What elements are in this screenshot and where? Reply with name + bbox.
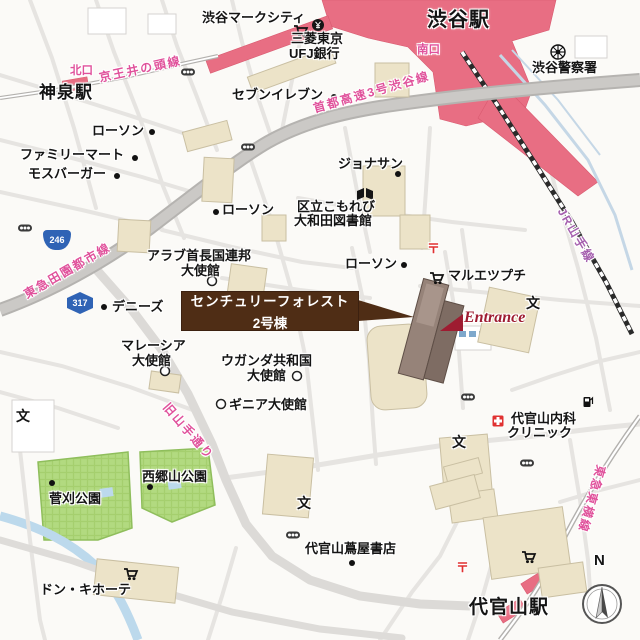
school-mark: 文 — [297, 496, 311, 510]
poi-dot — [213, 209, 219, 215]
label-north-exit: 北口 — [70, 66, 93, 78]
label-shinsen-station: 神泉駅 — [39, 84, 93, 101]
label-maruetsu-petit: マルエツプチ — [448, 269, 526, 282]
compass-rose — [583, 585, 621, 623]
label-lawson-2: ローソン — [222, 203, 274, 216]
school-mark: 文 — [526, 296, 540, 310]
traffic-light-icon — [18, 225, 32, 232]
label-lawson-3: ローソン — [345, 257, 397, 270]
label-uae-embassy-line2: 大使館 — [181, 264, 220, 277]
label-uganda-embassy-line1: ウガンダ共和国 — [221, 354, 312, 367]
label-seven-eleven: セブンイレブン — [232, 88, 323, 101]
label-dennys: デニーズ — [112, 300, 163, 313]
label-shibuya-station: 渋谷駅 — [427, 10, 490, 30]
bank-icon — [312, 19, 324, 31]
label-library-line2: 大和田図書館 — [294, 214, 372, 227]
label-jonathans: ジョナサン — [338, 157, 403, 170]
label-lawson-1: ローソン — [92, 124, 144, 137]
callout-pointer — [358, 300, 414, 321]
traffic-light-icon — [181, 69, 195, 76]
callout-building-name: センチュリーフォレスト — [182, 290, 358, 310]
poi-dot — [147, 484, 153, 490]
post-office-mark: 〒 — [456, 561, 469, 574]
poi-dot — [401, 262, 407, 268]
label-sugekari-park: 菅刈公園 — [49, 492, 101, 505]
label-south-exit: 南口 — [417, 45, 440, 57]
school-mark: 文 — [16, 409, 30, 423]
post-office-mark: 〒 — [427, 242, 440, 255]
label-malaysia-embassy-line2: 大使館 — [132, 354, 171, 367]
poi-dot — [349, 560, 355, 566]
poi-dot — [114, 173, 120, 179]
embassy-circle — [293, 372, 302, 381]
label-family-mart: ファミリーマート — [20, 148, 124, 161]
embassy-circle — [217, 400, 226, 409]
label-shibuya-police: 渋谷警察署 — [532, 61, 597, 74]
label-uae-embassy-line1: アラブ首長国連邦 — [147, 249, 251, 262]
traffic-light-icon — [241, 144, 255, 151]
traffic-light-icon — [520, 460, 534, 467]
poi-dot — [149, 129, 155, 135]
label-daikanyama-station: 代官山駅 — [469, 598, 549, 617]
poi-dot — [101, 304, 107, 310]
poi-dot — [395, 171, 401, 177]
label-don-quijote: ドン・キホーテ — [40, 583, 131, 596]
label-shibuya-mark-city: 渋谷マークシティ — [202, 11, 305, 24]
label-guinea-embassy: ギニア大使館 — [229, 398, 307, 411]
label-mufg-bank-line2: UFJ銀行 — [289, 47, 340, 60]
school-mark: 文 — [452, 435, 466, 449]
label-clinic-line1: 代官山内科 — [511, 412, 576, 425]
area-map: 渋谷マークシティ 渋谷駅 南口 北口 三菱東京 UFJ銀行 渋谷警察署 セブンイ… — [0, 0, 640, 640]
callout-building-number: 2号棟 — [182, 312, 358, 332]
traffic-light-icon — [461, 394, 475, 401]
label-uganda-embassy-line2: 大使館 — [247, 369, 286, 382]
label-mos-burger: モスバーガー — [28, 167, 106, 180]
poi-dot — [49, 480, 55, 486]
gas-station-icon — [584, 397, 593, 407]
traffic-light-icon — [286, 532, 300, 539]
label-tsutaya-books: 代官山蔦屋書店 — [305, 542, 396, 555]
label-library-line1: 区立こもれび — [297, 200, 375, 213]
label-mufg-bank-line1: 三菱東京 — [291, 32, 343, 45]
clinic-icon — [493, 416, 504, 427]
label-malaysia-embassy-line1: マレーシア — [121, 339, 186, 352]
poi-dot — [132, 155, 138, 161]
entrance-label: Entrance — [464, 309, 525, 327]
police-icon — [551, 45, 565, 59]
label-saigoyama-park: 西郷山公園 — [142, 470, 207, 483]
target-building-callout: センチュリーフォレスト 2号棟 — [182, 292, 358, 330]
compass-north-label: N — [594, 553, 605, 568]
label-clinic-line2: クリニック — [507, 426, 572, 439]
